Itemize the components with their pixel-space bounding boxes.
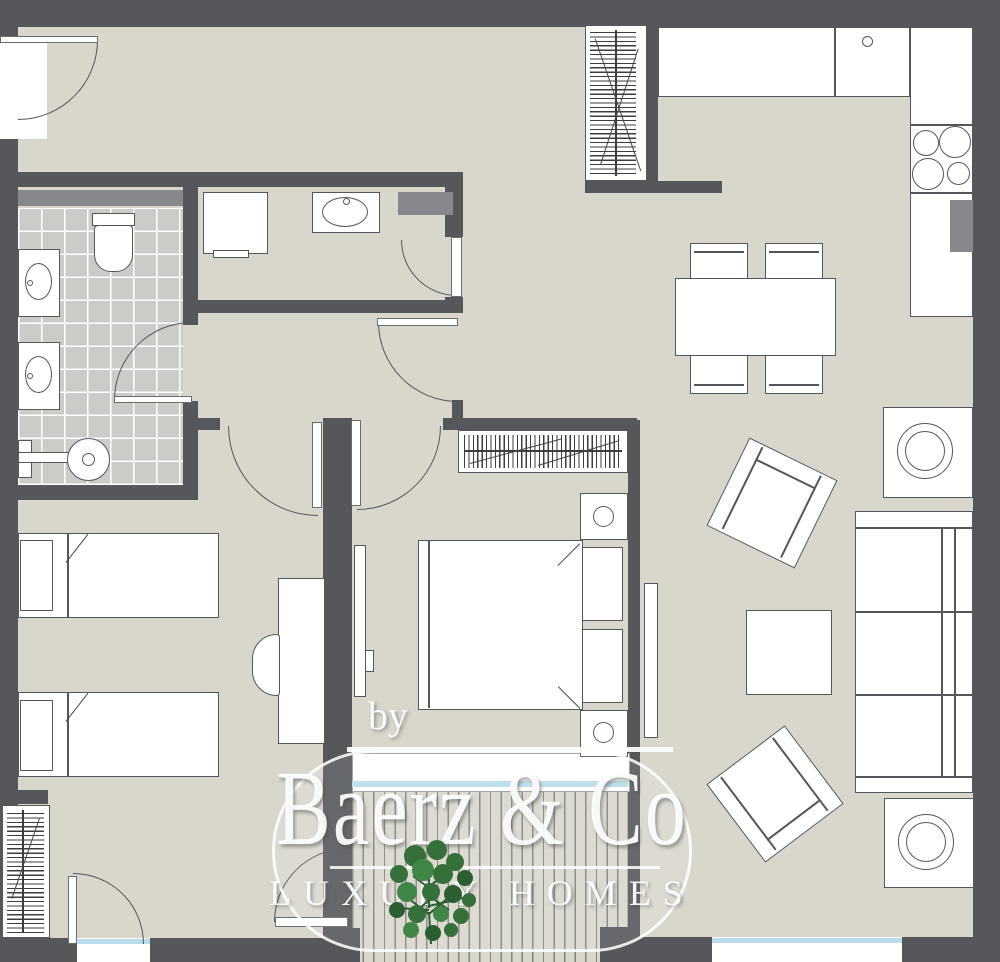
wall-outer-top	[0, 0, 1000, 27]
wc-sink-faucet	[343, 198, 350, 205]
bathroom-door-leaf	[114, 396, 192, 403]
master-tv	[354, 545, 366, 697]
master-lamp-top	[593, 506, 614, 527]
front-door-leaf	[0, 36, 98, 43]
kitchen-sink-drain	[862, 36, 873, 47]
sofa-armrest-bottom-line	[856, 776, 972, 778]
kitchen-counter-top	[658, 27, 835, 97]
dining-chair-top-left	[690, 243, 748, 280]
wall-entry-wardrobe-south	[585, 181, 722, 193]
wall-bathroom-east-a	[183, 187, 198, 325]
stove-burner-3	[912, 158, 944, 190]
bath-sink-1-drain	[27, 280, 33, 286]
master-window-glass	[352, 781, 628, 787]
stove-burner-4	[947, 162, 970, 185]
master-balcony-door-leaf	[275, 917, 348, 927]
sofa-seat-divider-2	[856, 694, 972, 696]
master-lamp-bottom	[593, 722, 614, 743]
master-wardrobe-rail	[464, 450, 622, 452]
stove-burner-1	[913, 130, 939, 156]
master-pillow-bottom	[582, 629, 623, 703]
dining-table	[675, 278, 836, 356]
bathroom-shelf	[18, 190, 183, 206]
master-tv-bracket	[365, 650, 374, 672]
sofa-backrest-line-1	[941, 528, 943, 776]
wall-outer-right	[973, 0, 1000, 962]
stove-burner-2	[939, 126, 971, 158]
shower-head-center	[82, 453, 95, 466]
washing-machine	[203, 192, 268, 254]
master-pillow-top	[582, 547, 623, 621]
dining-chair-bottom-right	[765, 354, 823, 394]
coffee-table	[746, 610, 832, 695]
floor-plan: by Baerz & Co LUXURY HOMES	[0, 0, 1000, 962]
master-bedroom-door-leaf	[351, 420, 361, 506]
side-table-bottom-lamp-inner	[906, 822, 946, 862]
wall-bottom-right-b	[902, 937, 1000, 962]
twin-balcony-door-leaf	[68, 876, 77, 944]
twin-bed-1-pillow	[20, 540, 53, 611]
dining-chair-back-1	[694, 251, 744, 253]
side-table-top-lamp-inner	[905, 431, 945, 471]
living-tv	[644, 583, 658, 738]
dining-chair-top-right	[765, 243, 823, 280]
shower-arm	[18, 452, 72, 463]
sofa-backrest-line-2	[954, 528, 956, 776]
master-bed-sheet-line	[428, 541, 430, 708]
twin-bed-2-sheet	[67, 693, 69, 776]
sofa-seat-divider-1	[856, 611, 972, 613]
wall-entry-wardrobe-east	[647, 25, 658, 181]
wall-bathroom-south	[0, 485, 198, 500]
dining-chair-bottom-left	[690, 354, 748, 394]
kitchen-counter-right-top	[910, 27, 973, 125]
living-window-glass	[712, 938, 902, 943]
dining-chair-back-4	[769, 384, 819, 386]
kitchen-sink-basin	[950, 200, 973, 252]
wall-twin-wardrobe-nib	[18, 790, 48, 804]
desk	[278, 578, 325, 744]
wall-balcony-corner	[600, 927, 628, 962]
wall-bottom-right-a	[628, 937, 712, 962]
kitchen-counter-sink-unit	[835, 27, 910, 97]
entry-wardrobe-hangers	[590, 32, 636, 174]
twin-bed-1-sheet	[67, 534, 69, 617]
twin-bed-2-pillow	[20, 700, 53, 771]
washing-machine-notch	[213, 250, 249, 258]
dining-chair-back-3	[694, 384, 744, 386]
wall-entry-south	[18, 172, 463, 187]
wall-master-north	[443, 418, 637, 430]
wall-hall-nib	[452, 400, 463, 422]
bath-sink-2-drain	[27, 373, 33, 379]
living-tv-stand	[637, 612, 640, 710]
dining-chair-back-2	[769, 251, 819, 253]
hall-door-leaf	[377, 318, 458, 326]
toilet-bowl	[94, 225, 133, 272]
